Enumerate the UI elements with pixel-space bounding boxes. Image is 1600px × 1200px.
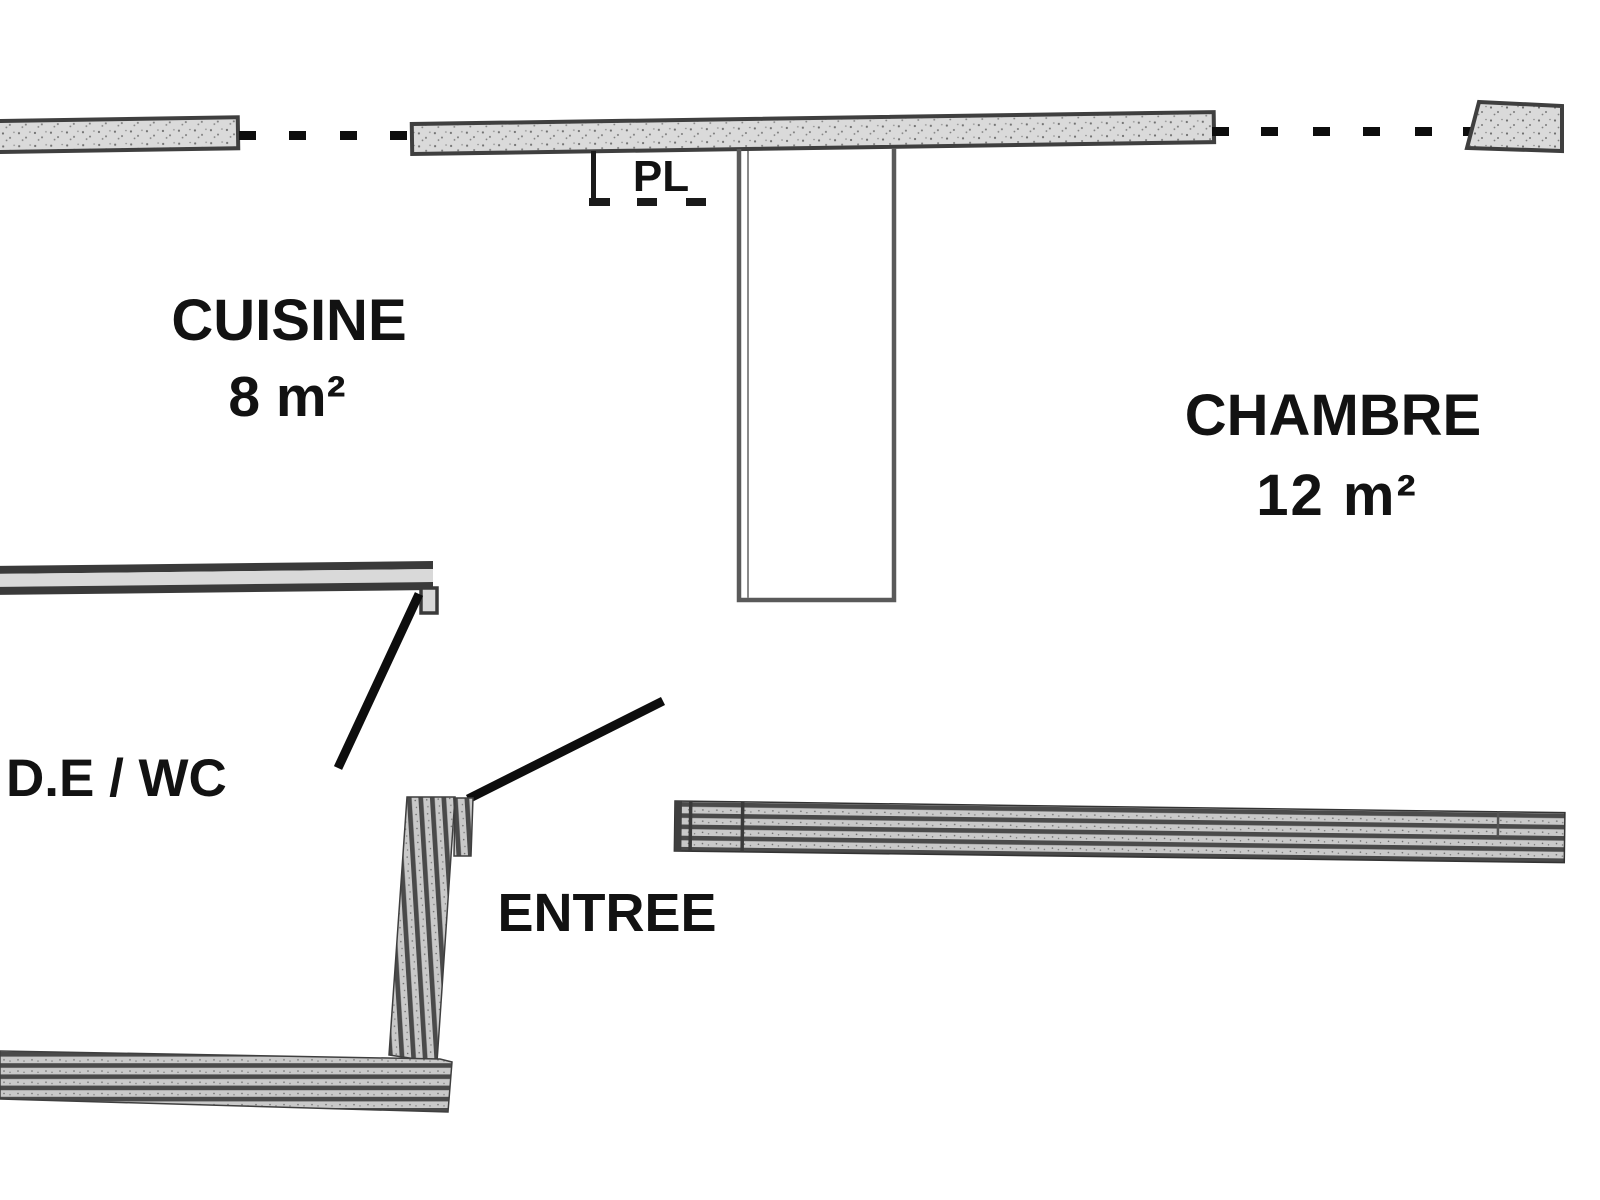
room-area-cuisine: 8 m² bbox=[228, 369, 345, 426]
floor-plan: CUISINE 8 m² CHAMBRE 12 m² D.E / WC ENTR… bbox=[0, 0, 1600, 1200]
exterior-wall-top-middle bbox=[412, 112, 1214, 154]
dashed-line-top-left bbox=[239, 131, 407, 140]
dashed-line-top-right bbox=[1212, 127, 1474, 136]
floor-plan-drawing bbox=[0, 0, 1600, 1200]
dewc-partition-wall bbox=[0, 561, 437, 613]
exterior-wall-top-left bbox=[0, 117, 238, 152]
dewc-door-leaf bbox=[338, 594, 419, 768]
room-label-chambre: CHAMBRE bbox=[1185, 387, 1481, 445]
room-label-entree: ENTREE bbox=[497, 886, 716, 940]
entrance-side-wall bbox=[389, 797, 473, 1062]
chambre-long-wall bbox=[674, 801, 1565, 863]
exterior-wall-top-right bbox=[1467, 102, 1562, 151]
column-partition bbox=[739, 148, 894, 600]
room-area-chambre: 12 m² bbox=[1256, 467, 1418, 525]
entry-door-leaf bbox=[468, 701, 663, 799]
closet-label-pl: PL bbox=[633, 155, 689, 199]
bottom-wall bbox=[0, 1051, 452, 1112]
room-label-de-wc: D.E / WC bbox=[6, 752, 227, 805]
room-label-cuisine: CUISINE bbox=[171, 292, 406, 350]
